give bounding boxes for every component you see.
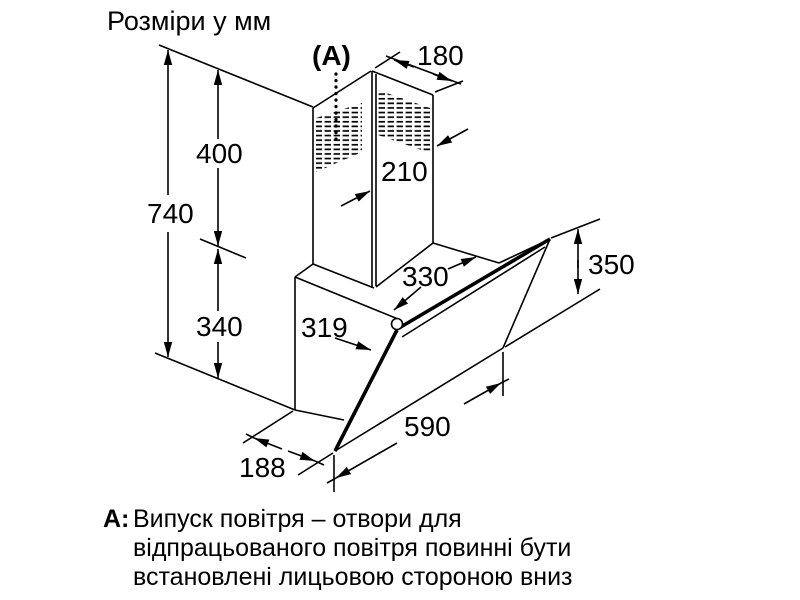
- dim-label-340: 340: [194, 313, 245, 341]
- footnote-line: відпрацьованого повітря повинні бути: [133, 534, 573, 563]
- dimension-arrows: [168, 50, 578, 483]
- footnote-text: Випуск повітря – отвори для відпрацьован…: [133, 505, 573, 592]
- screenshot: Розміри у мм 740 400 340 (A) 180 210 330…: [0, 0, 800, 600]
- rounded-corner-marker: [392, 319, 403, 330]
- page-title: Розміри у мм: [107, 6, 271, 37]
- footnote-line: встановлені лицьовою стороною вниз: [133, 563, 573, 592]
- dim-label-180: 180: [417, 42, 464, 70]
- dim-label-330: 330: [402, 263, 449, 291]
- dim-label-210: 210: [381, 158, 428, 186]
- dim-label-188: 188: [239, 454, 286, 482]
- dim-label-590: 590: [402, 413, 453, 441]
- footnote: A: Випуск повітря – отвори для відпрацьо…: [103, 505, 573, 592]
- callout-a-label: (A): [312, 42, 351, 70]
- footnote-prefix: A:: [103, 505, 133, 592]
- dim-label-740: 740: [145, 200, 196, 228]
- dim-label-350: 350: [588, 251, 635, 279]
- footnote-line: Випуск повітря – отвори для: [133, 505, 573, 534]
- dim-label-319: 319: [301, 314, 348, 342]
- dim-label-400: 400: [194, 140, 245, 168]
